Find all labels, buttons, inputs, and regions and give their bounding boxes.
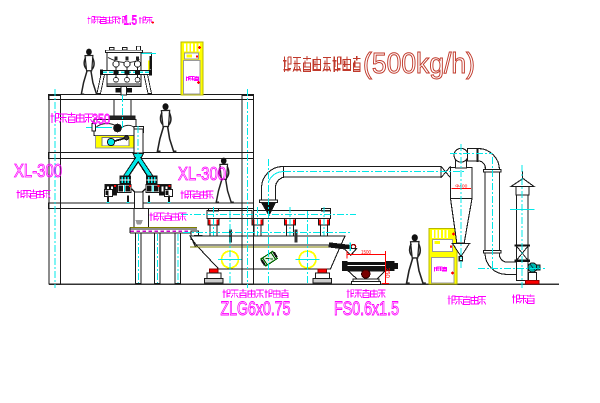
svg-text:350: 350 xyxy=(92,112,110,128)
svg-text:FS0.6x1.5: FS0.6x1.5 xyxy=(334,299,399,320)
svg-text:XL-300: XL-300 xyxy=(14,160,62,181)
svg-text:(500kg/h): (500kg/h) xyxy=(363,48,475,80)
svg-text:ZLG6x0.75: ZLG6x0.75 xyxy=(221,299,291,320)
svg-text:1500: 1500 xyxy=(361,250,371,256)
svg-text:350: 350 xyxy=(384,268,391,279)
svg-text:1.5: 1.5 xyxy=(124,14,138,28)
svg-text:XL-300: XL-300 xyxy=(178,163,226,184)
